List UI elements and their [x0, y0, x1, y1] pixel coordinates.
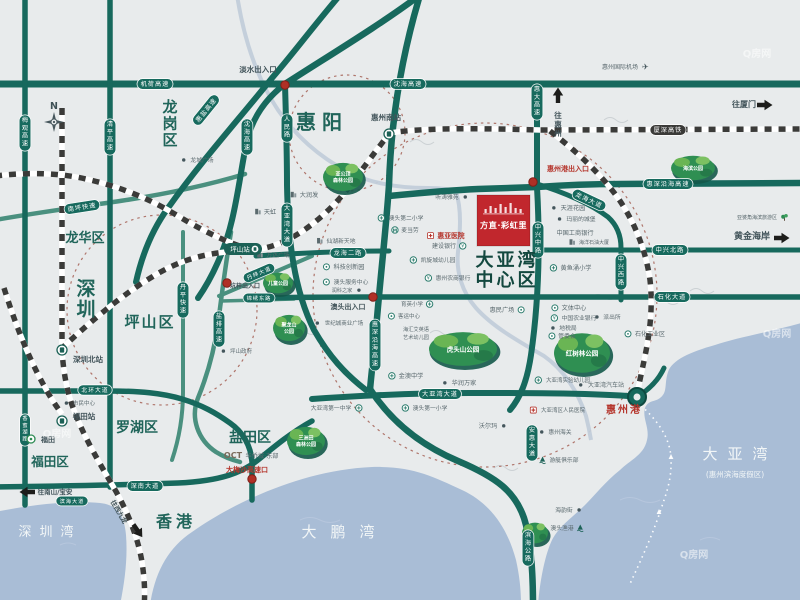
- poi: [558, 217, 561, 220]
- road-pill-label: 丹平快速: [180, 284, 187, 314]
- region-label: 深圳: [76, 277, 95, 321]
- road-pill-label: 滨海公路: [525, 531, 532, 562]
- poi: [579, 383, 582, 386]
- poi: [502, 424, 505, 427]
- road-pill: 龙海二路: [330, 248, 366, 259]
- road-pill-label: 安惠大道: [529, 426, 535, 457]
- road-pill: 滨海公路: [522, 530, 534, 566]
- poi-label: 中国农业银行: [562, 314, 597, 322]
- park-label: 亚公顶: [335, 171, 350, 178]
- poi: [530, 407, 536, 413]
- road-pill-label: 惠深沿海高速: [646, 180, 689, 188]
- bank-icon: ¥: [427, 276, 430, 282]
- poi: [552, 305, 558, 311]
- region-label: 坪山区: [124, 313, 175, 331]
- dot-icon: [502, 424, 505, 427]
- road-pill-label: 惠深沿海高速: [372, 320, 378, 367]
- building-icon: [317, 238, 320, 244]
- road-pill: 清平高速: [104, 119, 116, 155]
- road-pill: 北环大道: [78, 385, 112, 395]
- poi-label: 龙城广场: [190, 156, 213, 164]
- park-label: 三洲田: [298, 435, 313, 442]
- poi-label: 艺术幼儿园: [403, 333, 429, 341]
- poi: [316, 321, 319, 324]
- rail-icon: [387, 131, 391, 136]
- road-pill: 盐排高速: [213, 311, 225, 347]
- station-label: 坪山站: [230, 244, 250, 253]
- poi: M: [392, 227, 398, 234]
- project-marker-skyline: [485, 209, 487, 213]
- poi-label: 润科之家: [332, 286, 353, 294]
- ring-icon: [520, 309, 522, 311]
- watermark: Q房网: [763, 327, 792, 340]
- poi-label: 澳头出入口: [331, 302, 366, 311]
- poi-label: 万达广场: [266, 251, 289, 259]
- poi: [65, 401, 68, 404]
- region-label: 龙华区: [65, 230, 104, 246]
- dot-icon: [552, 206, 555, 209]
- region-label: 香港: [155, 512, 196, 531]
- project-marker-skyline: [490, 206, 492, 213]
- poi: ✈: [642, 62, 649, 71]
- poi: [222, 349, 225, 352]
- highway-exit-dot: [281, 81, 289, 89]
- park-label: 森林公园: [332, 177, 353, 184]
- region-label: 大亚湾: [476, 249, 539, 271]
- road-pill-label: 盐排高速: [216, 312, 222, 343]
- dot-icon: [65, 401, 68, 404]
- park-label: 儿童公园: [267, 280, 288, 287]
- poi: ¥: [460, 243, 466, 250]
- poi-label: 大梅沙高速口: [226, 465, 268, 474]
- poi: [356, 405, 362, 411]
- poi: [443, 381, 446, 384]
- poi-label: 惠州港出入口: [547, 164, 589, 173]
- poi: [426, 301, 432, 307]
- poi: [323, 279, 329, 285]
- poi: [182, 158, 185, 161]
- park-foliage: [696, 157, 710, 165]
- road-pill: 安惠大道: [526, 425, 538, 461]
- station-label: 福田站: [72, 411, 96, 421]
- poi: [428, 233, 434, 239]
- road-pill-label: 沈海高速: [394, 80, 423, 88]
- station-label: 深圳北站: [73, 354, 103, 364]
- poi-label: 惠州港: [606, 403, 642, 416]
- poi-label: 大亚湾汽车站: [588, 381, 624, 389]
- poi-label: 大润发: [300, 191, 319, 199]
- road-pill-label: 中兴西路: [618, 255, 625, 286]
- poi: ¥: [425, 275, 431, 282]
- road-pill-label: 中兴北路: [656, 246, 685, 254]
- poi-label: OCT: [224, 451, 243, 460]
- project-marker-skyline: [500, 204, 502, 213]
- building-icon: [573, 241, 575, 245]
- ring-icon: [627, 333, 629, 335]
- poi-label: 听涛雅苑: [435, 193, 458, 201]
- road-pill-label: 清平高速: [107, 120, 113, 151]
- water-shenzhen-bay: [0, 502, 127, 600]
- road-pill-label: 厦深高铁: [654, 126, 683, 134]
- park-label: 红树林公园: [566, 348, 599, 357]
- building-icon: [321, 239, 323, 243]
- building-icon: [291, 192, 294, 198]
- road-pill: 惠深沿海高速: [369, 319, 381, 371]
- project-marker-skyline: [483, 214, 524, 215]
- poi: [549, 333, 555, 339]
- project-marker-skyline: [495, 208, 497, 213]
- road-pill-label: 滨海大道: [60, 497, 85, 505]
- road-pill-label: 北环大道: [81, 386, 108, 394]
- road-pill-label: 沈海高速: [244, 120, 250, 151]
- poi: [389, 373, 395, 379]
- poi-label: 世纪城商业广场: [325, 319, 364, 327]
- poi-label: 往厦门: [732, 99, 756, 109]
- road-pill: 大亚湾大道: [281, 203, 293, 247]
- station: 坪山站: [224, 243, 262, 255]
- bank-icon: ¥: [461, 244, 464, 250]
- building-icon: [259, 210, 261, 214]
- poi: [550, 265, 556, 271]
- poi: [323, 264, 329, 270]
- road-pill: 深南大道: [127, 481, 163, 492]
- poi-label: 亚婆角海滨旅游区: [737, 214, 777, 221]
- road-pill-label: 人民路: [284, 116, 291, 139]
- project-name: 方直·彩虹里: [480, 220, 527, 230]
- highway-exit-dot: [369, 293, 377, 301]
- poi-label: 海汇艾英语: [403, 325, 429, 333]
- project-marker-skyline: [510, 203, 512, 213]
- poi-label: 澳头渔港: [550, 524, 573, 532]
- road-pill: 梅观高速: [19, 115, 31, 151]
- poi-label: 金澳中学: [399, 372, 424, 380]
- dot-icon: [464, 195, 467, 198]
- dot-icon: [182, 158, 185, 161]
- dot-icon: [316, 321, 319, 324]
- road-pill-label: 锦绣东路: [247, 294, 272, 302]
- region-label: 大亚湾: [702, 445, 777, 463]
- poi: [410, 257, 416, 263]
- highway-exit-dot: [248, 475, 256, 483]
- region-label: 中心区: [476, 269, 539, 291]
- road-pill: 滨海大道: [56, 496, 88, 506]
- road-pill-label: 梅观高速: [22, 116, 28, 147]
- road-pill: 机荷高速: [137, 79, 173, 90]
- road-pill-label: 龙海二路: [334, 249, 363, 257]
- region-label: 深圳湾: [18, 524, 81, 540]
- dot-icon: [357, 288, 360, 291]
- rail-icon: [60, 418, 64, 423]
- dot-icon: [595, 315, 598, 318]
- region-label: 盐田区: [229, 429, 271, 446]
- poi-label: 坑梓出入口: [230, 282, 260, 290]
- poi: [552, 206, 555, 209]
- road-pill: 丹平快速: [177, 282, 189, 318]
- ring-icon: [326, 266, 328, 268]
- poi-label: 沃尔玛: [479, 422, 498, 430]
- poi: [402, 405, 408, 411]
- poi-label: 惠州农商银行: [436, 274, 471, 282]
- poi-label: 天涯花园: [561, 204, 586, 212]
- road-pill-label: 惠大高速: [534, 85, 540, 116]
- road-pill-label: 大亚湾大道: [422, 390, 458, 398]
- dot-icon: [443, 381, 446, 384]
- poi-label: 坪山政府: [230, 347, 253, 355]
- poi-label: 海韵街: [555, 506, 573, 514]
- poi-label: 华侨城·东部: [246, 452, 279, 460]
- park-foliage: [280, 273, 290, 280]
- rail-icon: [254, 247, 257, 251]
- poi-label: 天虹: [264, 208, 276, 216]
- mcdonalds-icon: M: [393, 228, 398, 234]
- poi-label: 海洋石油大厦: [579, 239, 609, 246]
- road-pill: 中兴西路: [615, 254, 627, 290]
- compass-star: [53, 121, 55, 123]
- station-label: 惠州南站: [371, 112, 401, 122]
- road-pill: 厦深高铁: [650, 125, 686, 136]
- airplane-icon: ✈: [642, 62, 649, 71]
- poi-label: 惠州国际机场: [602, 63, 638, 71]
- road-pill-label: 大亚湾大道: [284, 204, 290, 243]
- tree-icon: [784, 214, 788, 218]
- road-pill: 大亚湾大道: [419, 389, 462, 400]
- road-pill: 中兴北路: [652, 245, 688, 256]
- dot-icon: [540, 430, 543, 433]
- region-label: (惠州滨海度假区): [706, 469, 764, 479]
- road-pill-label: 石化大道: [658, 293, 687, 301]
- poi-label: 管委会: [558, 332, 576, 340]
- map-canvas: 亚公顶森林公园海滨公园儿童公园聚龙山公园虎头山公园红树林公园三洲田森林公园机荷高…: [0, 0, 800, 600]
- ring-icon: [554, 307, 556, 309]
- tree-icon: [784, 218, 785, 221]
- project-marker: 方直·彩虹里: [477, 195, 530, 246]
- poi: [535, 377, 541, 383]
- road-pill: 惠大高速: [531, 84, 543, 120]
- poi: [388, 313, 394, 319]
- ring-icon: [551, 335, 553, 337]
- poi-label: 黄鱼涌小学: [561, 264, 592, 272]
- building-icon: [255, 209, 258, 215]
- ring-icon: [325, 281, 327, 283]
- highway-exit-dot: [529, 178, 537, 186]
- poi-label: 惠州海关: [548, 428, 571, 436]
- poi-label: 建设银行: [432, 242, 456, 250]
- poi-label: 仙湖新天地: [327, 237, 356, 245]
- rail-icon: [60, 347, 64, 352]
- region-label: 罗湖区: [116, 420, 158, 436]
- poi-label: 育英小学: [401, 300, 424, 308]
- dot-icon: [577, 508, 580, 511]
- poi-label: 惠民广场: [490, 306, 515, 314]
- poi-label: 大亚湾区人民医院: [541, 406, 586, 414]
- poi-label: 科技创新园: [334, 263, 365, 271]
- poi-label: 黄金海岸: [734, 230, 770, 242]
- poi-label: 中国工商银行: [556, 229, 593, 237]
- metro-icon: [30, 438, 33, 441]
- park-foliage: [585, 335, 603, 348]
- poi: ¥: [551, 315, 557, 322]
- poi-label: 大亚湾第一中学: [311, 404, 352, 412]
- road-pill: 惠深沿海高速: [643, 179, 693, 190]
- bank-icon: ¥: [553, 316, 556, 322]
- poi: [551, 326, 554, 329]
- dot-icon: [222, 349, 225, 352]
- park-foliage: [539, 534, 546, 541]
- road-pill: 石化大道: [654, 292, 690, 303]
- poi: [378, 215, 384, 221]
- road-pill: 锦绣东路: [243, 293, 275, 303]
- poi: [518, 307, 524, 313]
- poi: [464, 195, 467, 198]
- compass-n-label: N: [50, 101, 58, 112]
- poi-label: 石化工业区: [635, 330, 665, 338]
- park-foliage: [467, 333, 489, 345]
- watermark: Q房网: [743, 47, 772, 60]
- park-foliage: [537, 523, 545, 530]
- watermark: Q房网: [43, 427, 72, 440]
- poi-label: 市民中心: [73, 399, 96, 407]
- park-label: 聚龙山: [280, 322, 296, 329]
- park-label: 虎头山公园: [447, 344, 480, 353]
- poi-label: 澳头服务中心: [334, 278, 369, 286]
- region-label: 惠阳: [296, 110, 348, 134]
- poi-label: 惠亚医院: [437, 231, 464, 240]
- park-label: 公园: [284, 328, 294, 335]
- poi: [357, 288, 360, 291]
- poi: [625, 331, 631, 337]
- poi-label: 游艇俱乐部: [550, 456, 579, 464]
- dot-icon: [579, 383, 582, 386]
- road-pill: 沈海高速: [241, 119, 253, 155]
- poi-label: 地税局: [559, 324, 577, 332]
- project-marker-skyline: [505, 207, 507, 213]
- project-marker-skyline: [520, 209, 522, 213]
- location-map: 亚公顶森林公园海滨公园儿童公园聚龙山公园虎头山公园红树林公园三洲田森林公园机荷高…: [0, 0, 800, 600]
- dot-icon: [558, 217, 561, 220]
- building-icon: [261, 253, 263, 257]
- watermark: Q房网: [680, 548, 709, 561]
- poi-label: 派出所: [603, 313, 621, 321]
- poi-label: 文体中心: [562, 304, 587, 312]
- ring-icon: [391, 315, 393, 317]
- road-pill: 人民路: [281, 114, 293, 142]
- region-label: 大鹏湾: [301, 523, 388, 541]
- port-node-center: [634, 394, 641, 401]
- poi-label: 澳头第二小学: [389, 214, 424, 222]
- poi-label: 往南山/宝安: [38, 487, 73, 496]
- poi-label: 华润万家: [452, 379, 477, 387]
- road-pill-label: 机荷高速: [141, 80, 170, 88]
- road-pill-label: 深南大道: [131, 482, 160, 490]
- park-label: 森林公园: [295, 441, 316, 448]
- poi-label: 玛丽的城堡: [567, 215, 596, 223]
- project-marker-skyline: [515, 208, 517, 213]
- building-icon: [294, 193, 296, 197]
- poi-label: 凯旋城幼儿园: [421, 256, 456, 264]
- poi: [577, 508, 580, 511]
- region-label: 龙岗区: [161, 98, 177, 149]
- region-label: 福田区: [30, 454, 69, 469]
- poi-label: 客运中心: [398, 312, 421, 320]
- poi-label: 大亚湾实验幼儿园: [546, 376, 591, 384]
- dot-icon: [551, 326, 554, 329]
- poi-label: 麦当劳: [401, 226, 419, 234]
- building-icon: [570, 239, 573, 245]
- poi-label: 澳头第一小学: [413, 404, 448, 412]
- park-foliage: [294, 329, 303, 337]
- poi: [540, 430, 543, 433]
- park-label: 海滨公园: [683, 165, 703, 172]
- poi-label: 往惠州: [553, 110, 562, 138]
- poi-label: 淡水出入口: [239, 64, 277, 74]
- road-pill: 沈海高速: [390, 79, 426, 90]
- poi: [595, 315, 598, 318]
